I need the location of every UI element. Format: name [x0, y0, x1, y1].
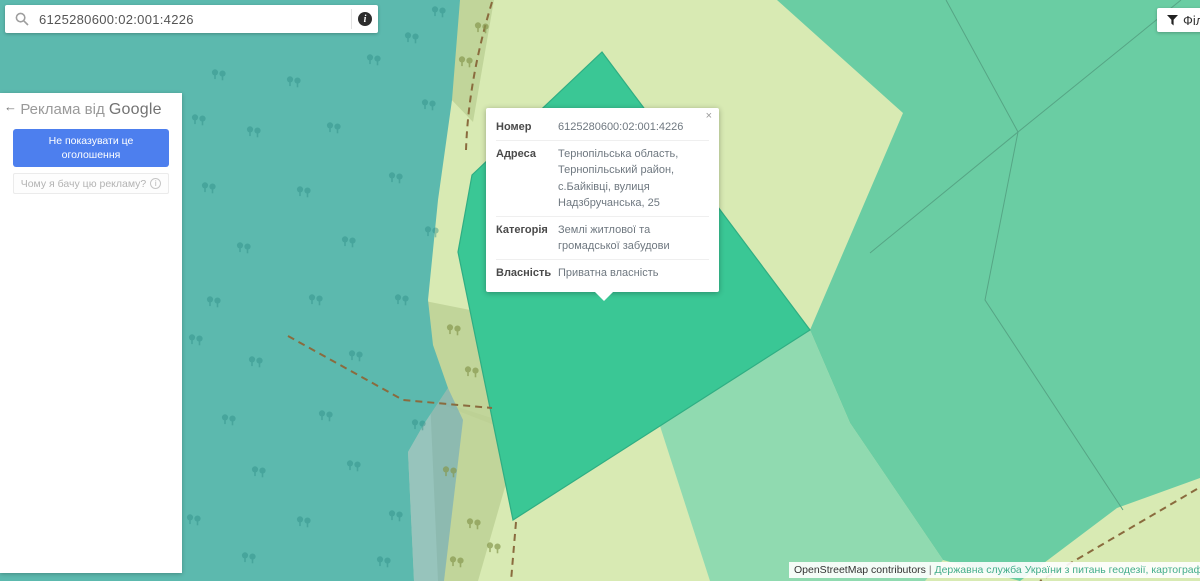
- info-icon: i: [358, 12, 372, 26]
- popup-row-ownership: Власність Приватна власність: [496, 259, 709, 286]
- popup-label: Номер: [496, 119, 558, 136]
- parcel-info-button[interactable]: i: [352, 5, 378, 33]
- popup-value: Землі житлової та громадської забудови: [558, 222, 709, 255]
- search-bar[interactable]: i: [5, 5, 378, 33]
- osm-attribution-link[interactable]: OpenStreetMap contributors: [794, 564, 926, 576]
- popup-row-number: Номер 6125280600:02:001:4226: [496, 114, 709, 140]
- map-attribution: OpenStreetMap contributors | Державна сл…: [789, 562, 1200, 578]
- popup-label: Адреса: [496, 146, 558, 212]
- attribution-separator: |: [929, 564, 932, 576]
- why-this-ad-label: Чому я бачу цю рекламу?: [21, 178, 147, 190]
- popup-value: Приватна власність: [558, 265, 709, 282]
- popup-value: Тернопільська область, Тернопільський ра…: [558, 146, 709, 212]
- filter-button[interactable]: Фільтр: [1157, 8, 1200, 32]
- close-icon[interactable]: ×: [706, 111, 712, 122]
- google-logo: Google: [109, 101, 162, 118]
- popup-value: 6125280600:02:001:4226: [558, 119, 709, 136]
- cadastral-map-app: i Фільтр ← Реклама від Google Не показув…: [0, 0, 1200, 581]
- search-icon: [5, 12, 39, 26]
- google-ad-panel: ← Реклама від Google Не показувати це ог…: [0, 93, 182, 573]
- dismiss-ad-button[interactable]: Не показувати це оголошення: [13, 129, 169, 167]
- filter-icon: [1167, 15, 1178, 26]
- popup-label: Категорія: [496, 222, 558, 255]
- popup-label: Власність: [496, 265, 558, 282]
- parcel-info-popup: × Номер 6125280600:02:001:4226 Адреса Те…: [486, 108, 719, 292]
- info-outline-icon: i: [150, 178, 161, 189]
- filter-button-label: Фільтр: [1183, 13, 1200, 28]
- ad-panel-title: Реклама від Google: [20, 101, 161, 118]
- popup-row-address: Адреса Тернопільська область, Тернопільс…: [496, 140, 709, 216]
- popup-row-category: Категорія Землі житлової та громадської …: [496, 216, 709, 259]
- why-this-ad-link[interactable]: Чому я бачу цю рекламу? i: [13, 173, 169, 194]
- ad-panel-header: ← Реклама від Google: [0, 93, 182, 119]
- search-input[interactable]: [39, 12, 351, 27]
- gov-attribution-link[interactable]: Державна служба України з питань геодезі…: [934, 564, 1200, 576]
- collapse-arrow-icon[interactable]: ←: [4, 99, 17, 114]
